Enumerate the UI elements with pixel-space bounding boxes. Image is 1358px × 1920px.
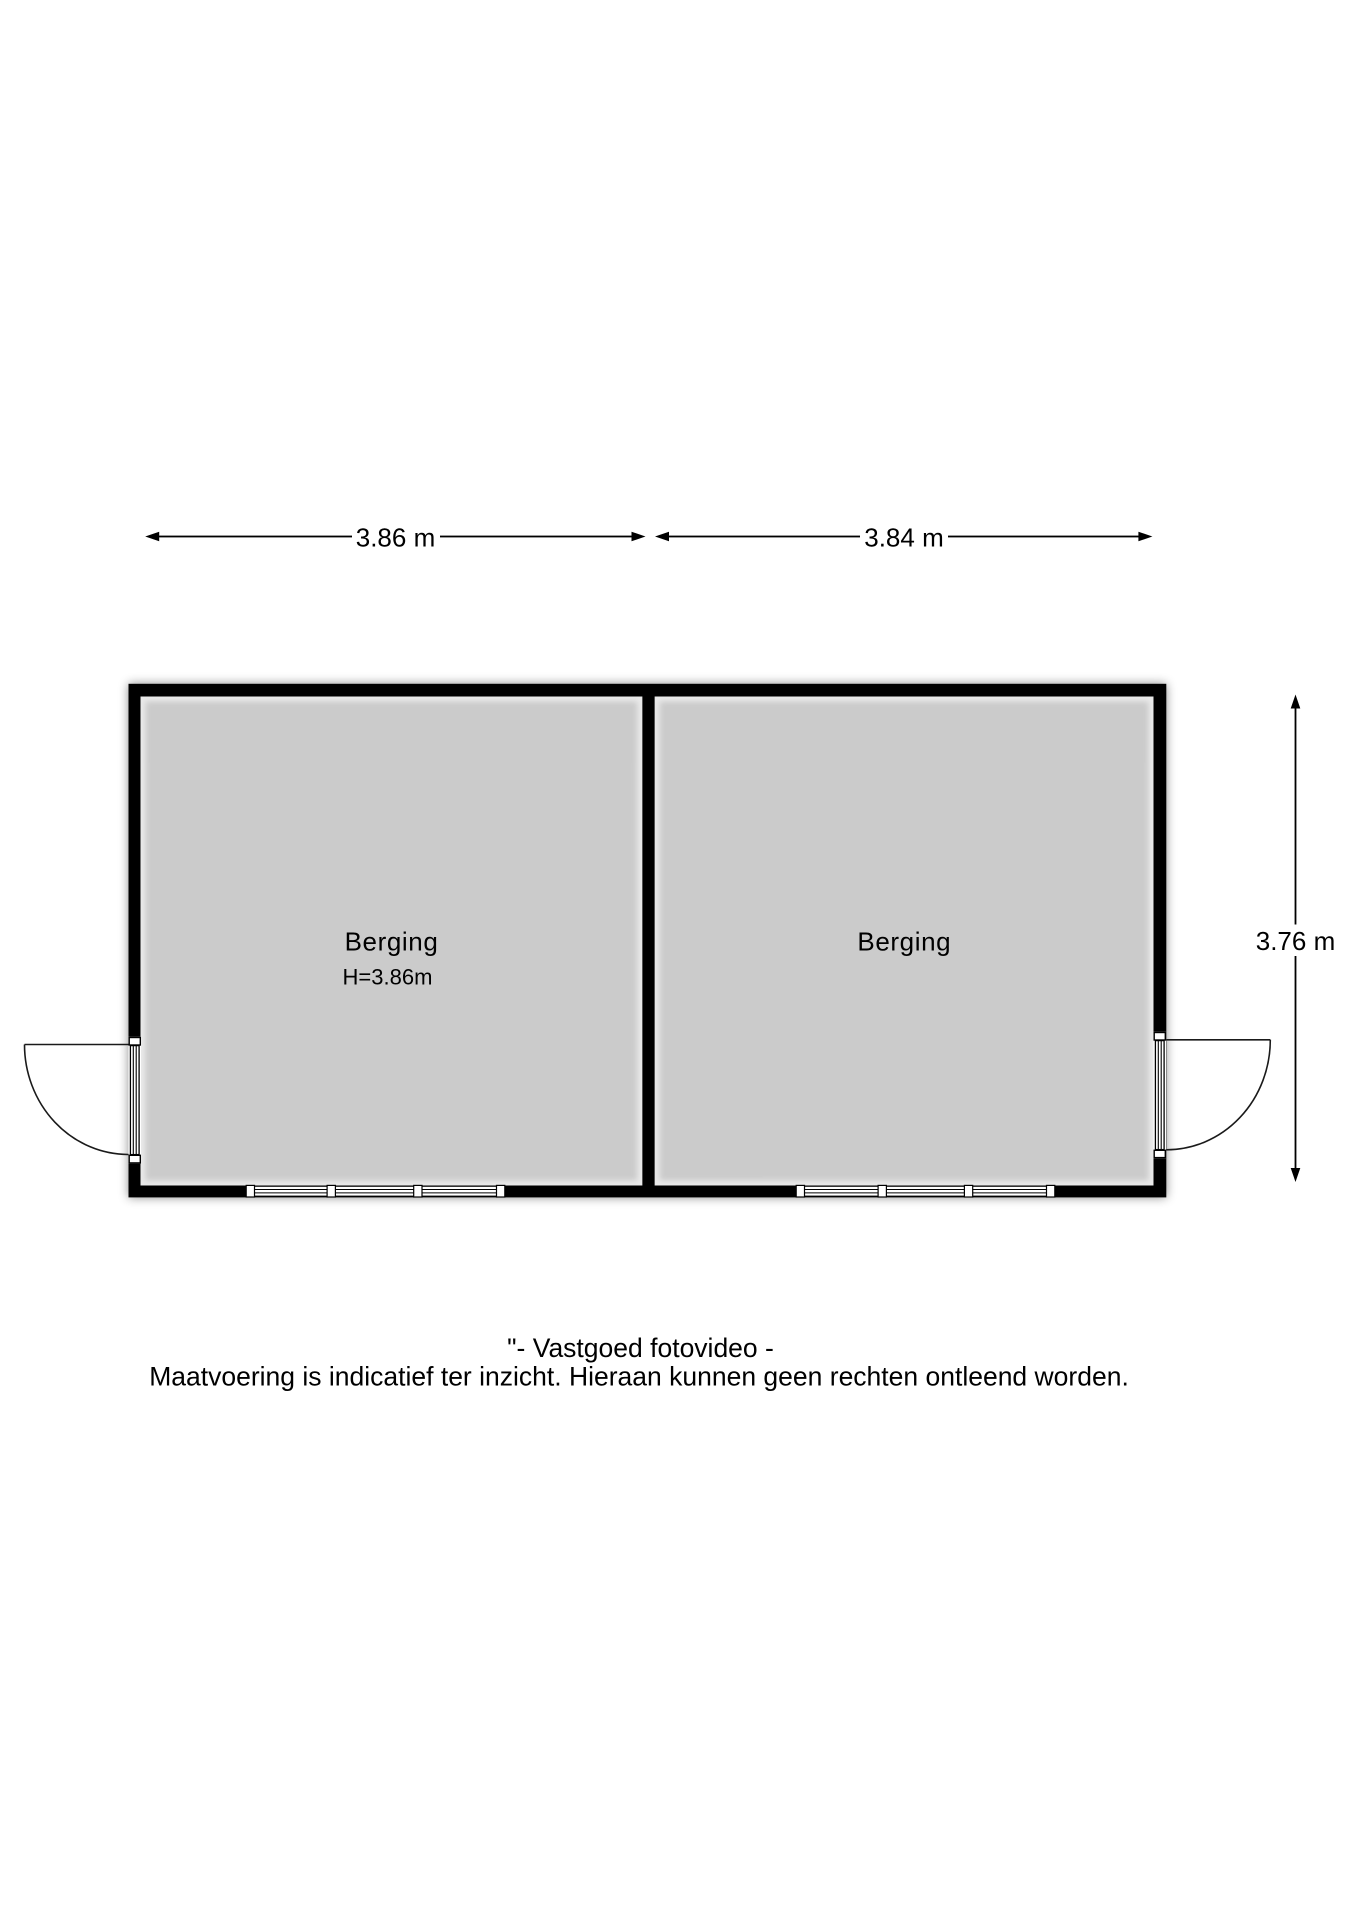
svg-text:Berging: Berging — [345, 927, 439, 957]
svg-text:"- Vastgoed fotovideo -: "- Vastgoed fotovideo - — [507, 1333, 774, 1363]
svg-text:Maatvoering is indicatief ter: Maatvoering is indicatief ter inzicht. H… — [149, 1362, 1129, 1392]
svg-text:H=3.86m: H=3.86m — [343, 965, 433, 990]
svg-text:3.86 m: 3.86 m — [356, 523, 436, 553]
svg-text:Berging: Berging — [857, 927, 951, 957]
svg-text:3.76 m: 3.76 m — [1256, 926, 1336, 956]
svg-text:3.84 m: 3.84 m — [864, 523, 944, 553]
